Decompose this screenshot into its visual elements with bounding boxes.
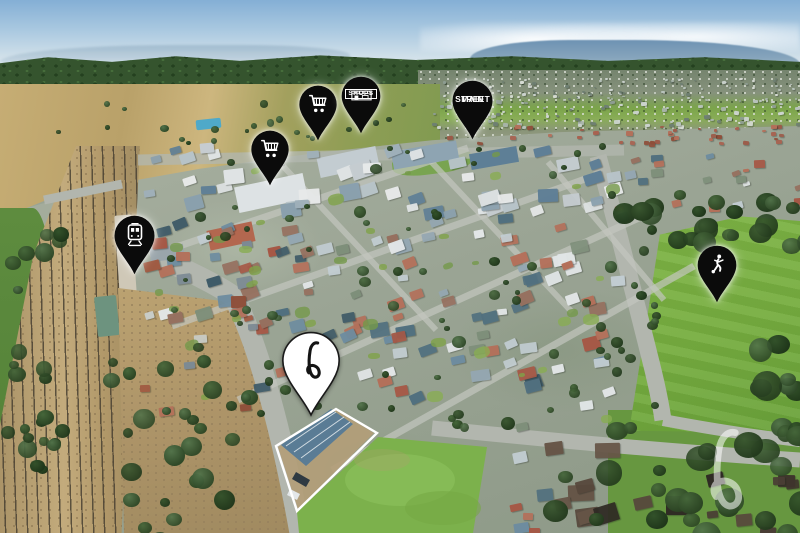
map-pin-supermarket-far: [298, 85, 338, 141]
aerial-photo: SHOPS MAIN STREET: [0, 0, 800, 533]
train-icon: [123, 222, 147, 247]
brand-b-watermark: [692, 424, 750, 510]
shopping-cart-icon: [307, 92, 329, 114]
main-street-pin-label-line2: STREET: [455, 95, 490, 105]
shopping-cart-icon: [259, 137, 281, 159]
soccer-player-icon: [706, 253, 729, 276]
shops-pin-label: SHOPS: [345, 89, 376, 99]
main-street-road: [138, 150, 624, 160]
map-pin-shops: SHOPS: [340, 76, 382, 134]
map-pin-supermarket-near: [250, 130, 290, 186]
rail-overpass: [44, 184, 122, 200]
map-pin-sports-ground: [696, 245, 738, 303]
brand-b-logo: [296, 339, 326, 379]
map-pin-featured-property: [279, 331, 343, 417]
map-pin-train-station: [112, 215, 157, 275]
map-pin-main-street: MAIN STREET: [449, 80, 496, 140]
